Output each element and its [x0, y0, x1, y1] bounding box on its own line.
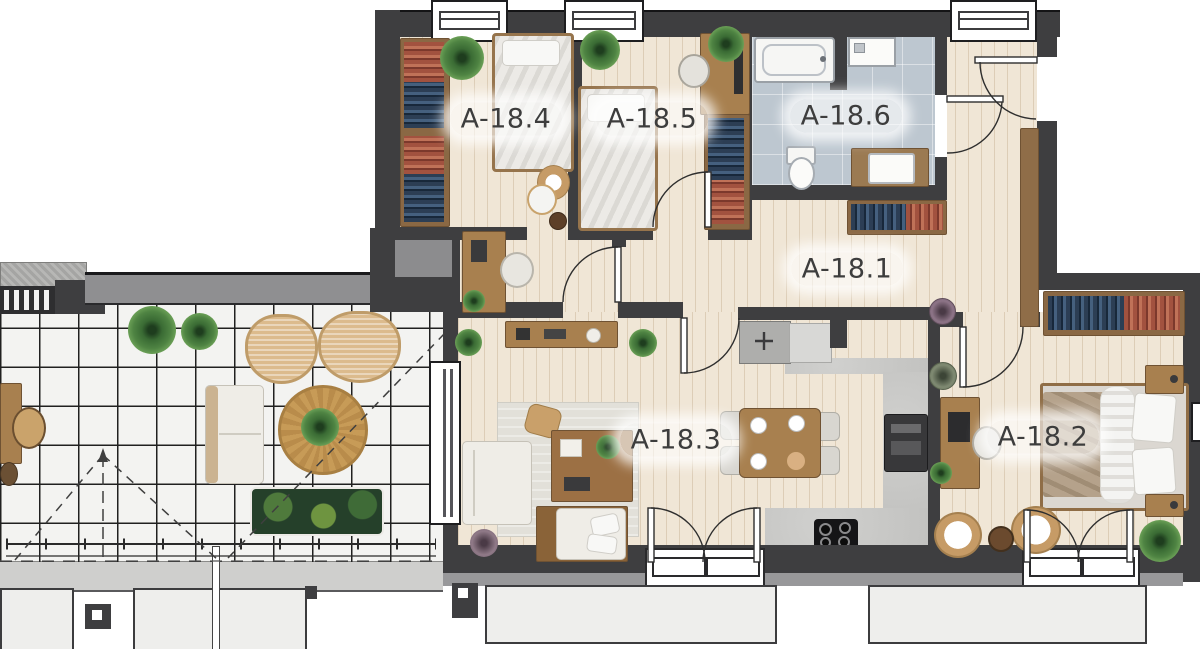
terrace-sofa [205, 385, 264, 484]
wall-kitchen-stub [830, 312, 847, 348]
fridge-panel-1 [891, 424, 921, 433]
daybed-cushions [556, 508, 626, 560]
desk-plant-a182 [930, 462, 952, 484]
wall-bedroom-top [1037, 273, 1200, 290]
anchor-block-3 [452, 583, 478, 618]
terrace-table-plant [301, 408, 339, 446]
anchor-block-1-core [92, 610, 102, 620]
wardrobe-a182 [1043, 291, 1185, 336]
sideboard [505, 321, 618, 348]
floor-plan: A-18.1 A-18.2 A-18.3 A-18.4 A-18.5 A-18.… [0, 0, 1200, 649]
dining-plate-2 [788, 415, 805, 432]
terrace-plant-1 [128, 306, 176, 354]
nightstand-top [1145, 365, 1184, 394]
terrace-pole [212, 546, 220, 649]
balcony-door-panel-l2 [1029, 557, 1082, 577]
terrace-sofa-arm [206, 386, 218, 483]
nightstand-top-knob [1170, 375, 1178, 383]
coffee-table-plant [596, 435, 620, 459]
kitchen-counter [789, 323, 832, 363]
bathroom-door-opening [935, 95, 947, 157]
room-label-a182: A-18.2 [988, 421, 1099, 454]
cooktop-burner-1 [819, 523, 832, 536]
lounge-table [988, 526, 1014, 552]
desk-a182-laptop [948, 412, 970, 442]
anchor-block-2 [305, 586, 317, 599]
dining-plate-1 [750, 417, 767, 434]
window-hall [950, 0, 1037, 42]
toilet-bowl [788, 157, 815, 190]
balcony-door-panel-r2 [1082, 557, 1135, 577]
lounge-chair-1 [934, 512, 982, 558]
desk-chair-a185 [678, 54, 710, 88]
lower-slab-1 [0, 588, 74, 649]
bed-a182-pillow-1 [1131, 392, 1177, 443]
wardrobe-a184-clothes-3 [404, 136, 444, 174]
terrace-sofa-cushion-split [219, 433, 261, 435]
sideboard-speaker [516, 328, 530, 340]
window-hall-frame [958, 11, 1029, 30]
window-a185-mullion [574, 18, 634, 20]
anchor-block-1 [85, 604, 111, 629]
daybed-pillow-2 [586, 533, 618, 555]
lounge-chair-2 [1011, 506, 1061, 554]
wardrobe-a182-clothes-red [1124, 296, 1180, 330]
window-bedroom-east [1191, 402, 1200, 442]
terrace-planter-box [250, 487, 384, 536]
vase-purple [929, 298, 956, 325]
vanity-sink [868, 153, 915, 184]
window-a184-mullion [441, 18, 498, 20]
hall-wardrobe-clothes-red [906, 204, 943, 230]
wardrobe-a182-clothes-blue [1048, 296, 1124, 330]
wardrobe-a185-clothes-2 [708, 180, 744, 224]
corridor-desk-items [471, 240, 487, 262]
nightstand-bottom-knob [1170, 501, 1178, 509]
window-hall-mullion [960, 18, 1027, 20]
room-label-a183: A-18.3 [621, 424, 732, 457]
dining-plate-3 [750, 453, 767, 470]
lower-slab-2 [133, 588, 307, 649]
terrace-wicker-chair-1 [245, 314, 318, 384]
corridor-plant [463, 290, 485, 312]
bathtub-faucet [820, 56, 826, 62]
dining-bowl [786, 451, 806, 471]
plant-a182 [1139, 520, 1181, 562]
terrace-plant-2 [181, 313, 218, 350]
wall-left [375, 10, 400, 240]
sideboard-plant-left [455, 329, 482, 356]
window-living-west-pane-1 [443, 369, 446, 517]
nightstand-bottom [1145, 494, 1184, 517]
room-label-a185: A-18.5 [597, 103, 708, 136]
plant-a184 [440, 36, 484, 80]
terrace-wicker-chair-2 [318, 311, 401, 383]
terrace-dining-chair [12, 407, 46, 449]
anchor-block-3-core [458, 588, 468, 598]
corridor-desk-chair [500, 252, 534, 288]
room-label-a181: A-18.1 [792, 253, 903, 286]
wardrobe-a184-clothes-2 [404, 82, 444, 128]
balcony-door-panel-r [706, 557, 760, 577]
wall-bathroom-bottom [737, 185, 947, 200]
hall-cabinet [1020, 128, 1039, 327]
wall-kitchen-bedroom [928, 320, 940, 545]
wall-corridor-living-b [618, 302, 683, 318]
window-a185-frame [572, 11, 636, 30]
wardrobe-a184-clothes-1 [404, 42, 444, 82]
living-vase [470, 529, 498, 557]
fridge-panel-2 [891, 441, 921, 455]
window-a184-frame [439, 11, 500, 30]
room-label-a184: A-18.4 [451, 103, 562, 136]
armchair [462, 441, 532, 525]
bed-a182-duvet [1100, 386, 1135, 504]
armchair-back-line [473, 450, 475, 516]
shower-drain [854, 43, 865, 53]
room-label-a186: A-18.6 [791, 100, 902, 133]
shower-tray [848, 37, 896, 67]
kitchen-sink-counter [739, 321, 791, 364]
coffee-table-book [560, 439, 582, 457]
wardrobe-a185-clothes-1 [708, 118, 744, 180]
window-living-west-pane-2 [450, 369, 453, 517]
wall-door-stub [612, 230, 626, 247]
coffee-table-tray [564, 477, 590, 491]
vent-grille [0, 286, 57, 314]
terrace-parapet-wall [85, 272, 380, 305]
hall-wardrobe [847, 200, 947, 235]
plant-a185 [580, 30, 620, 70]
pouf-a184-2 [527, 184, 557, 215]
balcony-door-panel-l [652, 557, 706, 577]
balcony-door-sill-living [645, 548, 765, 587]
sideboard-item [544, 329, 566, 339]
wardrobe-a184-clothes-4 [404, 174, 444, 222]
entrance-door-opening [1037, 57, 1057, 121]
vanity-cabinet [851, 148, 929, 187]
bed-a184-pillow [502, 40, 560, 66]
wall-corner-inset [395, 238, 452, 277]
desk-plant-a185 [708, 26, 744, 62]
dining-table [739, 408, 821, 478]
vent-grille-slats [4, 290, 53, 310]
hall-wardrobe-clothes-blue [851, 204, 906, 230]
bed-a182-pillow-2 [1131, 447, 1176, 496]
window-living-west [429, 361, 461, 525]
cooktop-burner-2 [839, 522, 851, 534]
fridge [884, 414, 928, 472]
bathtub [754, 37, 835, 83]
balcony-door-sill-bedroom [1022, 548, 1140, 587]
bathtub-basin [762, 44, 826, 76]
balcony-slab-bedroom [868, 585, 1147, 644]
balcony-slab-living [485, 585, 777, 644]
vase-green [929, 362, 957, 390]
wardrobe-a185 [704, 114, 750, 230]
wall-corner-block [370, 228, 460, 312]
sideboard-plant-right [629, 329, 657, 357]
side-table-a184 [549, 212, 567, 230]
sideboard-bowl [586, 328, 601, 343]
terrace-dining-chair-partial [0, 462, 18, 486]
